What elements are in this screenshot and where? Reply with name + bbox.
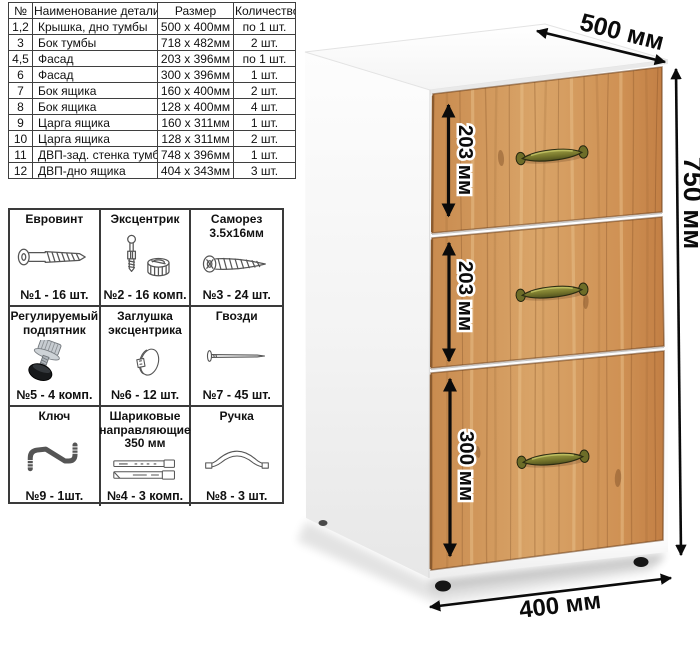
cell-qty: по 1 шт.: [234, 19, 296, 35]
cam-cap-icon: [106, 337, 184, 388]
cell-number: 9: [9, 115, 33, 131]
nail-icon: [198, 324, 276, 389]
hex-key-icon: [16, 424, 92, 490]
cell-qty: по 1 шт.: [234, 51, 296, 67]
table-row: 3Бок тумбы718 x 482мм2 шт.: [9, 35, 296, 51]
cell-number: 4,5: [9, 51, 33, 67]
hardware-item-foot: Регулируемый подпятник №5 - 4 комп.: [10, 307, 101, 407]
handle-icon: [198, 424, 276, 490]
cell-number: 10: [9, 131, 33, 147]
cell-name: ДВП-дно ящика: [33, 163, 158, 179]
table-row: 12ДВП-дно ящика404 x 343мм3 шт.: [9, 163, 296, 179]
table-row: 1,2Крышка, дно тумбы500 x 400ммпо 1 шт.: [9, 19, 296, 35]
hardware-item-title: Шариковые направляющие 350 мм: [99, 410, 190, 451]
hardware-item-qty: №6 - 12 шт.: [111, 388, 179, 402]
hardware-item-title: Ключ: [38, 410, 70, 424]
cell-size: 300 x 396мм: [158, 67, 234, 83]
hardware-item-cap: Заглушка эксцентрика №6 - 12 шт.: [101, 307, 192, 407]
cell-size: 404 x 343мм: [158, 163, 234, 179]
drawer-slides-icon: [106, 451, 184, 490]
hardware-item-handle: Ручка №8 - 3 шт.: [191, 407, 282, 506]
cell-number: 6: [9, 67, 33, 83]
cell-number: 11: [9, 147, 33, 163]
height-dimension-label: 750 мм: [678, 157, 700, 250]
cell-number: 3: [9, 35, 33, 51]
drawer1-dimension-label: 203 мм: [454, 125, 477, 195]
parts-table: № Наименование детали Размер Количество …: [8, 2, 296, 179]
drawer2-dimension-label: 203 мм: [454, 261, 477, 331]
drawer3-dimension-label: 300 мм: [455, 431, 478, 501]
cell-qty: 1 шт.: [234, 147, 296, 163]
hardware-item-slides: Шариковые направляющие 350 мм №4 - 3 ком…: [101, 407, 192, 506]
cell-name: Фасад: [33, 51, 158, 67]
col-header-name: Наименование детали: [33, 3, 158, 19]
hardware-item-qty: №7 - 45 шт.: [203, 388, 271, 402]
cell-name: Царга ящика: [33, 115, 158, 131]
cell-size: 718 x 482мм: [158, 35, 234, 51]
hardware-item-excentric: Эксцентрик №2 - 16 комп.: [101, 210, 192, 307]
table-row: 7Бок ящика160 x 400мм2 шт.: [9, 83, 296, 99]
cell-qty: 4 шт.: [234, 99, 296, 115]
hardware-item-eurovint: Евровинт №1 - 16 шт.: [10, 210, 101, 307]
cell-name: Царга ящика: [33, 131, 158, 147]
cell-size: 128 x 400мм: [158, 99, 234, 115]
cabinet-foot-left: [435, 581, 451, 592]
table-row: 11ДВП-зад. стенка тумбы748 x 396мм1 шт.: [9, 147, 296, 163]
hardware-item-qty: №1 - 16 шт.: [20, 288, 88, 302]
table-row: 9Царга ящика160 x 311мм1 шт.: [9, 115, 296, 131]
cell-qty: 3 шт.: [234, 163, 296, 179]
cell-qty: 2 шт.: [234, 83, 296, 99]
hardware-item-title: Гвозди: [216, 310, 258, 324]
hardware-item-qty: №2 - 16 комп.: [103, 288, 186, 302]
cell-number: 7: [9, 83, 33, 99]
cell-qty: 2 шт.: [234, 35, 296, 51]
cam-lock-icon: [106, 227, 184, 289]
col-header-size: Размер: [158, 3, 234, 19]
cell-size: 160 x 400мм: [158, 83, 234, 99]
cell-name: Крышка, дно тумбы: [33, 19, 158, 35]
table-row: 6Фасад300 x 396мм1 шт.: [9, 67, 296, 83]
height-dimension-arrow: [676, 69, 681, 555]
cell-name: Бок ящика: [33, 99, 158, 115]
hardware-item-qty: №4 - 3 комп.: [107, 489, 183, 503]
screw-icon: [198, 240, 276, 288]
cell-size: 500 x 400мм: [158, 19, 234, 35]
cell-size: 160 x 311мм: [158, 115, 234, 131]
adjustable-foot-icon: [17, 337, 91, 388]
cell-size: 203 x 396мм: [158, 51, 234, 67]
depth-dimension-label: 400 мм: [518, 587, 603, 624]
hardware-legend: Евровинт №1 - 16 шт. Эксцентрик: [8, 208, 284, 504]
hardware-item-nails: Гвозди №7 - 45 шт.: [191, 307, 282, 407]
col-header-qty: Количество: [234, 3, 296, 19]
table-row: 8Бок ящика128 x 400мм4 шт.: [9, 99, 296, 115]
table-row: 4,5Фасад203 x 396ммпо 1 шт.: [9, 51, 296, 67]
euro-screw-icon: [15, 227, 93, 289]
hardware-item-title: Евровинт: [25, 213, 83, 227]
cell-size: 128 x 311мм: [158, 131, 234, 147]
hardware-item-title: Саморез 3.5х16мм: [193, 213, 280, 240]
hardware-item-qty: №5 - 4 комп.: [16, 388, 92, 402]
cell-number: 12: [9, 163, 33, 179]
cell-name: Бок тумбы: [33, 35, 158, 51]
hardware-item-title: Ручка: [219, 410, 253, 424]
cell-number: 8: [9, 99, 33, 115]
hardware-item-qty: №3 - 24 шт.: [203, 288, 271, 302]
cabinet-foot-back: [319, 520, 328, 526]
assembly-sheet: № Наименование детали Размер Количество …: [0, 0, 700, 648]
hardware-item-qty: №9 - 1шт.: [25, 489, 83, 503]
cell-qty: 1 шт.: [234, 115, 296, 131]
cabinet-foot-right: [634, 557, 649, 567]
hardware-item-title: Эксцентрик: [111, 213, 180, 227]
cell-qty: 1 шт.: [234, 67, 296, 83]
col-header-number: №: [9, 3, 33, 19]
cell-name: Фасад: [33, 67, 158, 83]
cabinet-photo: 500 мм 750 мм 400 мм 203 мм 203 мм 300 м…: [290, 0, 700, 648]
cell-size: 748 x 396мм: [158, 147, 234, 163]
hardware-item-samorez: Саморез 3.5х16мм №3 - 24 шт.: [191, 210, 282, 307]
cell-name: ДВП-зад. стенка тумбы: [33, 147, 158, 163]
cabinet-side-panel: [305, 52, 430, 578]
hardware-item-title: Регулируемый подпятник: [11, 310, 99, 337]
table-row: 10Царга ящика128 x 311мм2 шт.: [9, 131, 296, 147]
cell-number: 1,2: [9, 19, 33, 35]
cell-name: Бок ящика: [33, 83, 158, 99]
parts-table-header: № Наименование детали Размер Количество: [9, 3, 296, 19]
hardware-item-qty: №8 - 3 шт.: [206, 489, 267, 503]
hardware-item-key: Ключ №9 - 1шт.: [10, 407, 101, 506]
hardware-item-title: Заглушка эксцентрика: [103, 310, 188, 337]
cell-qty: 2 шт.: [234, 131, 296, 147]
